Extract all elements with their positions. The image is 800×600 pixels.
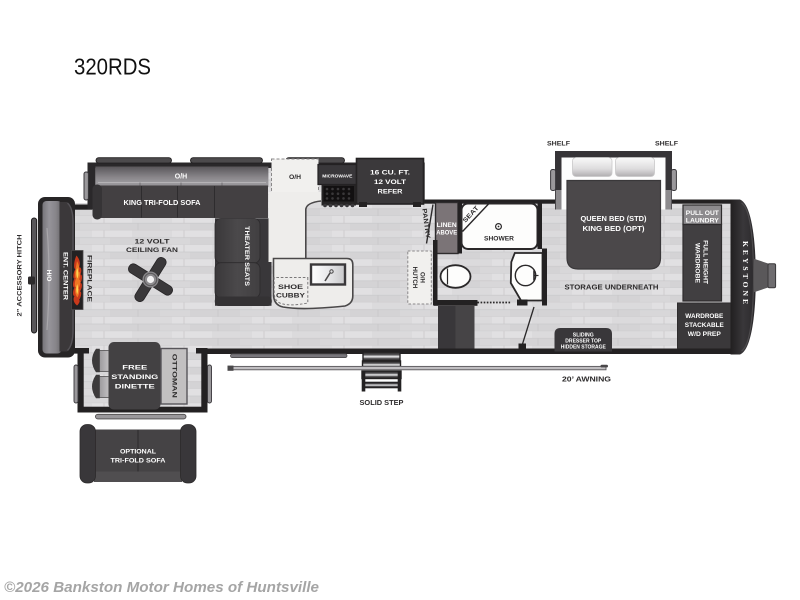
svg-text:WARDROBE: WARDROBE	[685, 313, 724, 320]
svg-text:O/H: O/H	[175, 174, 187, 181]
svg-text:STANDING: STANDING	[111, 374, 158, 381]
svg-text:SHELF: SHELF	[547, 140, 570, 147]
svg-text:PULL OUT: PULL OUT	[686, 210, 719, 217]
svg-text:THEATER SEATS: THEATER SEATS	[243, 226, 250, 287]
svg-text:DINETTE: DINETTE	[115, 384, 156, 391]
svg-text:LAUNDRY: LAUNDRY	[686, 218, 720, 225]
svg-text:CEILING FAN: CEILING FAN	[126, 247, 178, 254]
svg-text:H/O: H/O	[45, 270, 52, 282]
svg-text:SHOE: SHOE	[278, 284, 304, 291]
svg-text:ABOVE: ABOVE	[436, 231, 457, 237]
svg-text:HIDDEN STORAGE: HIDDEN STORAGE	[561, 345, 607, 351]
svg-text:SHOWER: SHOWER	[484, 236, 514, 243]
svg-text:LINEN: LINEN	[437, 223, 457, 229]
svg-text:2” ACCESSORY HITCH: 2” ACCESSORY HITCH	[17, 234, 24, 316]
svg-text:REFER: REFER	[378, 189, 404, 196]
svg-text:KING BED (OPT): KING BED (OPT)	[583, 224, 646, 233]
svg-text:FULL HEIGHT WARDROBE: FULL HEIGHT WARDROBE	[694, 240, 709, 286]
svg-text:12 VOLT: 12 VOLT	[135, 239, 171, 246]
svg-text:QUEEN BED (STD): QUEEN BED (STD)	[581, 214, 648, 223]
svg-text:20’ AWNING: 20’ AWNING	[562, 377, 612, 384]
svg-text:STACKABLE: STACKABLE	[685, 322, 725, 329]
svg-text:OTTOMAN: OTTOMAN	[170, 354, 177, 399]
svg-text:STORAGE UNDERNEATH: STORAGE UNDERNEATH	[565, 285, 659, 292]
svg-text:SHELF: SHELF	[655, 140, 678, 147]
svg-text:O/H: O/H	[289, 174, 301, 181]
svg-text:SOLID STEP: SOLID STEP	[360, 400, 404, 407]
svg-text:12 VOLT: 12 VOLT	[374, 179, 406, 186]
svg-text:KEYSTONE: KEYSTONE	[741, 241, 750, 307]
svg-text:FIREPLACE: FIREPLACE	[86, 255, 93, 302]
svg-text:320RDS: 320RDS	[74, 54, 151, 80]
svg-text:KING TRI-FOLD SOFA: KING TRI-FOLD SOFA	[124, 200, 201, 207]
svg-text:MICROWAVE: MICROWAVE	[322, 174, 352, 179]
svg-text:W/D PREP: W/D PREP	[688, 331, 722, 338]
svg-text:OPTIONAL: OPTIONAL	[120, 449, 156, 456]
svg-text:TRI-FOLD SOFA: TRI-FOLD SOFA	[111, 458, 166, 465]
svg-text:FREE: FREE	[122, 365, 148, 372]
svg-text:©2026 Bankston Motor Homes of: ©2026 Bankston Motor Homes of Huntsville	[4, 579, 320, 596]
svg-text:CUBBY: CUBBY	[276, 293, 306, 300]
svg-text:16 CU. FT.: 16 CU. FT.	[370, 170, 410, 177]
svg-text:ENT. CENTER: ENT. CENTER	[62, 252, 69, 301]
